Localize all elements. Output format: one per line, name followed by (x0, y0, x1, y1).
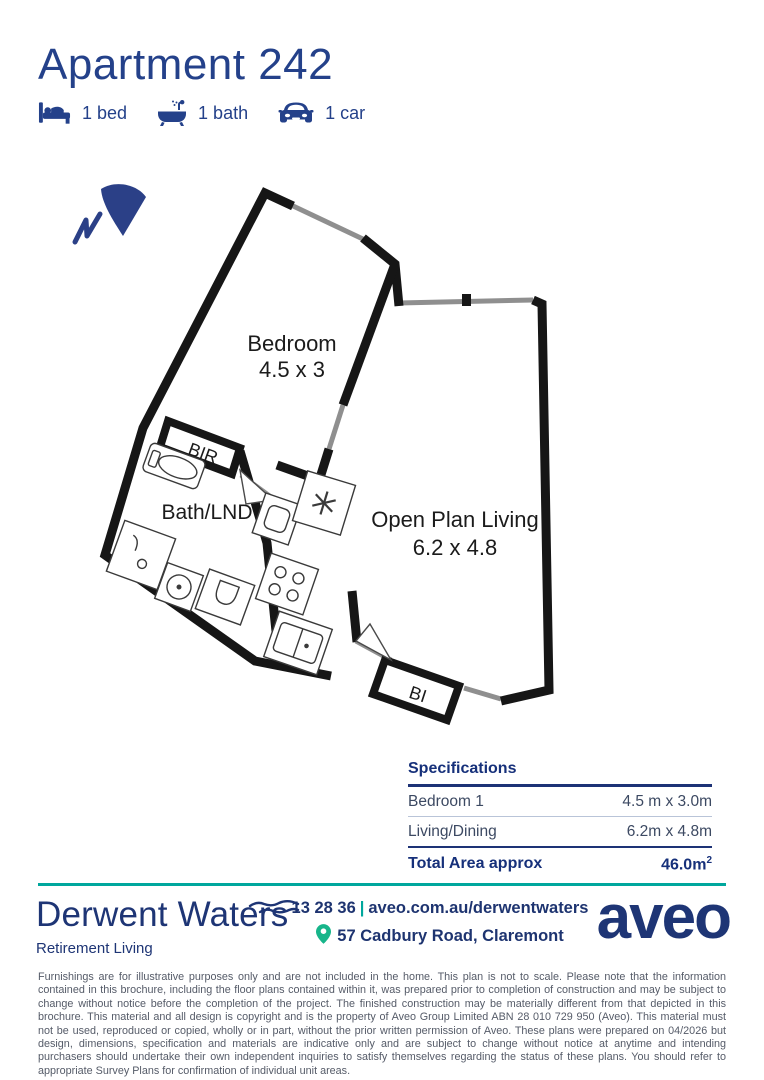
specifications-table: Specifications Bedroom 1 4.5 m x 3.0m Li… (408, 760, 712, 874)
phone-number: 13 28 36 (292, 899, 356, 917)
disclaimer-text: Furnishings are for illustrative purpose… (38, 971, 726, 1078)
table-row: Bedroom 1 4.5 m x 3.0m (408, 787, 712, 817)
pantry-icon (292, 471, 355, 535)
feature-car-label: 1 car (325, 103, 365, 124)
contact-block: 13 28 36|aveo.com.au/derwentwaters 57 Ca… (290, 899, 590, 949)
feature-bath: 1 bath (157, 99, 248, 127)
spec-total-label: Total Area approx (408, 855, 542, 874)
feature-bed: 1 bed (38, 101, 127, 125)
floor-plan: Bedroom 4.5 x 3 Bath/LND Open Plan Livin… (55, 163, 585, 735)
living-label: Open Plan Living (371, 507, 539, 532)
contact-separator: | (356, 899, 369, 917)
spec-total-row: Total Area approx 46.0m2 (408, 848, 712, 874)
location-pin-icon (316, 924, 331, 949)
spec-row-label: Living/Dining (408, 823, 497, 841)
contact-phone-web: 13 28 36|aveo.com.au/derwentwaters (290, 899, 590, 918)
brand-subtitle: Retirement Living (36, 940, 288, 957)
page-title: Apartment 242 (38, 40, 333, 90)
feature-bed-label: 1 bed (82, 103, 127, 124)
spec-row-value: 4.5 m x 3.0m (622, 793, 712, 811)
address-text: 57 Cadbury Road, Claremont (337, 927, 563, 946)
north-arrow-icon (75, 184, 146, 242)
feature-car: 1 car (278, 101, 365, 125)
car-icon (278, 101, 314, 125)
spec-total-value: 46.0m2 (661, 855, 712, 874)
bedroom-dims: 4.5 x 3 (259, 357, 325, 382)
spec-row-label: Bedroom 1 (408, 793, 484, 811)
entry-door-swing (356, 624, 391, 660)
contact-address: 57 Cadbury Road, Claremont (290, 924, 590, 949)
table-row: Living/Dining 6.2m x 4.8m (408, 817, 712, 848)
bedroom-label: Bedroom (247, 331, 336, 356)
bed-icon (38, 101, 71, 125)
brochure-page: Apartment 242 1 bed (0, 0, 764, 1080)
website-url: aveo.com.au/derwentwaters (368, 899, 588, 917)
spec-row-value: 6.2m x 4.8m (627, 823, 712, 841)
toilet-icon (195, 569, 254, 625)
bath-icon (157, 99, 187, 127)
living-dims: 6.2 x 4.8 (413, 535, 497, 560)
feature-bath-label: 1 bath (198, 103, 248, 124)
brand-logo: Derwent Waters Retirement Living (36, 895, 288, 957)
brand-name: Derwent Waters (36, 895, 288, 935)
window-mullion (462, 294, 471, 306)
aveo-logo: aveo (597, 882, 730, 953)
feature-summary: 1 bed 1 bath (38, 99, 395, 127)
specifications-heading: Specifications (408, 760, 712, 787)
bath-label: Bath/LND (161, 501, 252, 524)
